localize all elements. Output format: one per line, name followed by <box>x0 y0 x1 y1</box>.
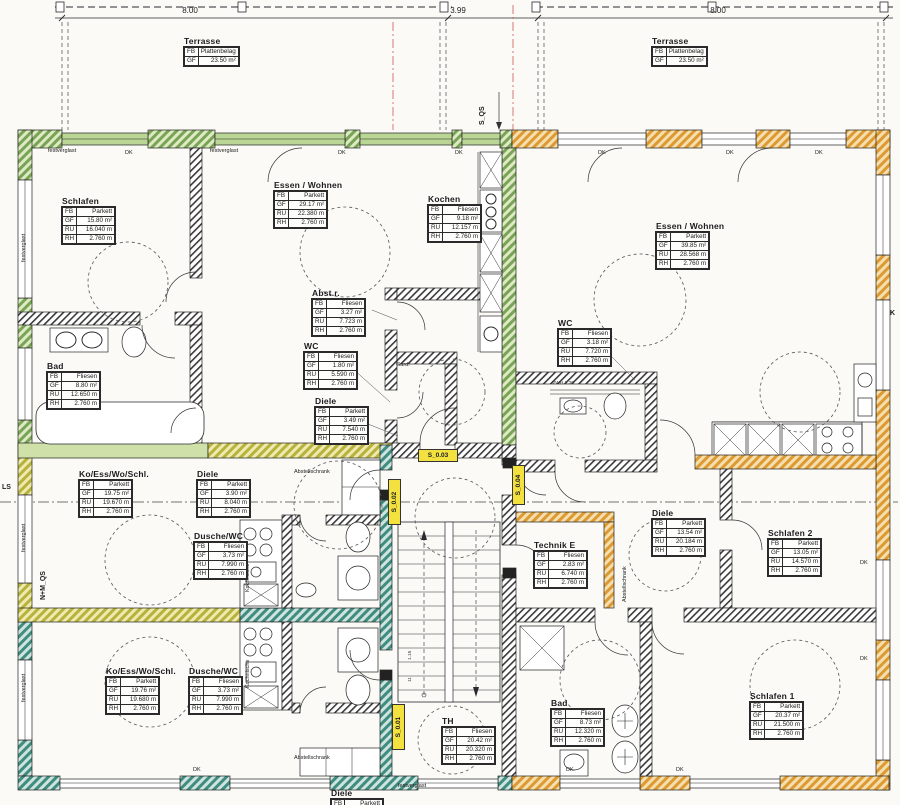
kitchen-left-fixtures <box>478 152 502 352</box>
room-name: Schlafen 1 <box>750 691 803 701</box>
room-name: Terrasse <box>184 36 239 46</box>
window-label-dk: DK <box>566 767 574 773</box>
room-annotation-dusche-upper: Dusche/WC FBFliesenGF3.73 m²RU7.990 mRH2… <box>194 531 247 579</box>
window-label-dk: DK <box>125 150 133 156</box>
section-mark-s003: S_0.03 <box>418 449 458 462</box>
room-annotation-essen-wohnen-right: Essen / Wohnen FBParkettGF39.85 m²RU28.5… <box>656 221 724 269</box>
room-data-table: FBFliesenGF8.73 m²RU12.320 mRH2.760 m <box>551 709 604 746</box>
room-annotation-terrasse-right: Terrasse FBPlattenbelagGF23.50 m² <box>652 36 707 66</box>
axis-label-ls: LS <box>2 484 11 491</box>
room-name: Dusche/WC <box>194 531 247 541</box>
room-annotation-abstellraum: Abst.r. FBFliesenGF3.27 m²RU7.723 mRH2.7… <box>312 288 365 336</box>
closet-label-abstellschrank: Abstellschrank <box>294 469 330 475</box>
room-name: Abst.r. <box>312 288 365 298</box>
window-label-dk: DK <box>455 150 463 156</box>
room-data-table: FBFliesenGF2.83 m²RU6.740 mRH2.760 m <box>534 551 587 588</box>
room-name: Essen / Wohnen <box>274 180 342 190</box>
window-label-dk: DK <box>815 150 823 156</box>
room-name: Diele <box>331 788 383 798</box>
closet-label-abstellschrank: Abstellschrank <box>622 566 628 602</box>
room-data-table: FBParkettGF29.17 m²RU22.380 mRH2.760 m <box>274 191 327 228</box>
room-annotation-studio-lower: Ko/Ess/Wo/Schl. FBParkettGF19.76 m²RU19.… <box>106 666 176 714</box>
room-data-table: FBFliesenGF8.80 m²RU12.650 mRH2.760 m <box>47 372 100 409</box>
room-annotation-wc-right: WC FBFliesenGF3.18 m²RU7.720 mRH2.760 m <box>558 318 611 366</box>
window-label-festverglast: festverglast <box>21 234 27 262</box>
room-data-table: FBFliesenGF3.18 m²RU7.720 mRH2.760 m <box>558 329 611 366</box>
wall-height-note: VWH 1.30 <box>552 381 574 386</box>
axis-label-nmqs: N+M_QS <box>40 571 47 600</box>
terrace-lines <box>55 2 893 130</box>
closet-label-abstellschrank: Abstellschrank <box>294 755 330 761</box>
dimension-label-mid: 3.99 <box>438 6 478 15</box>
room-annotation-kochen: Kochen FBFliesenGF9.18 m²RU12.157 mRH2.7… <box>428 194 481 242</box>
room-annotation-bad-left: Bad FBFliesenGF8.80 m²RU12.650 mRH2.760 … <box>47 361 100 409</box>
window-label-dk: DK <box>726 150 734 156</box>
room-name: WC <box>558 318 611 328</box>
room-name: Dusche/WC <box>189 666 242 676</box>
room-annotation-bad-right: Bad FBFliesenGF8.73 m²RU12.320 mRH2.760 … <box>551 698 604 746</box>
window-label-dk: DK <box>193 767 201 773</box>
room-name: Diele <box>315 396 368 406</box>
room-annotation-schlafen: Schlafen FBParkettGF15.80 m²RU16.040 mRH… <box>62 196 115 244</box>
window-label-dk: DK <box>338 150 346 156</box>
room-data-table: FBParkettGF20.37 m²RU21.500 mRH2.760 m <box>750 702 803 739</box>
kitchenette-label-kochnische: Kochnische <box>245 660 251 688</box>
dimension-label-left: 8.00 <box>170 6 210 15</box>
room-data-table: FBFliesenGF3.73 m²RU7.990 mRH2.760 m <box>189 677 242 714</box>
room-annotation-studio-upper: Ko/Ess/Wo/Schl. FBParkettGF19.75 m²RU19.… <box>79 469 149 517</box>
room-name: Kochen <box>428 194 481 204</box>
dimension-label-right: 8.00 <box>698 6 738 15</box>
room-data-table: FBParkettGF3.90 m²RU8.040 mRH2.760 m <box>197 480 250 517</box>
window-label-dk: DK <box>676 767 684 773</box>
axis-label-k: K <box>890 310 895 317</box>
room-name: Schlafen <box>62 196 115 206</box>
room-annotation-terrasse-left: Terrasse FBPlattenbelagGF23.50 m² <box>184 36 239 66</box>
window-label-dk: DK <box>860 656 868 662</box>
room-name: Diele <box>197 469 250 479</box>
room-data-table: FBFliesenGF20.42 m²RU20.320 mRH2.760 m <box>442 727 495 764</box>
room-data-table: FBFliesenGF3.27 m²RU7.723 mRH2.760 m <box>312 299 365 336</box>
room-name: Essen / Wohnen <box>656 221 724 231</box>
window-label-festverglast: festverglast <box>210 148 238 154</box>
room-data-table: FBFliesenGF3.73 m²RU7.990 mRH2.760 m <box>194 542 247 579</box>
stair-note-a: 1.15 <box>408 651 413 660</box>
window-label-festverglast: festverglast <box>21 524 27 552</box>
stair-note-b: 11 <box>408 677 413 682</box>
room-annotation-wc-left: WC FBFliesenGF1.80 m²RU5.590 mRH2.760 m <box>304 341 357 389</box>
room-data-table: FBPlattenbelagGF23.50 m² <box>652 47 707 66</box>
window-label-dk: DK <box>860 560 868 566</box>
room-annotation-schlafen1: Schlafen 1 FBParkettGF20.37 m²RU21.500 m… <box>750 691 803 739</box>
room-name: TH <box>442 716 495 726</box>
window-label-dk: DK <box>598 150 606 156</box>
floor-plan-page: Terrasse FBPlattenbelagGF23.50 m² Terras… <box>0 0 900 805</box>
room-name: Technik E <box>534 540 587 550</box>
room-name: WC <box>304 341 357 351</box>
room-name: Ko/Ess/Wo/Schl. <box>106 666 176 676</box>
room-data-table: FBParkettGF13.54 m²RU20.184 mRH2.760 m <box>652 519 705 556</box>
window-label-festverglast: festverglast <box>48 148 76 154</box>
room-data-table: FBParkettGF13.05 m²RU14.570 mRH2.760 m <box>768 539 821 576</box>
window-label-festverglast: festverglast <box>21 674 27 702</box>
room-data-table: FBFliesenGF1.80 m²RU5.590 mRH2.760 m <box>304 352 357 389</box>
room-data-table: FBParkettGF39.85 m²RU28.568 mRH2.760 m <box>656 232 709 269</box>
room-data-table: FBPlattenbelagGF23.50 m² <box>184 47 239 66</box>
room-annotation-dusche-lower: Dusche/WC FBFliesenGF3.73 m²RU7.990 mRH2… <box>189 666 242 714</box>
room-name: Terrasse <box>652 36 707 46</box>
room-annotation-diele-right: Diele FBParkettGF13.54 m²RU20.184 mRH2.7… <box>652 508 705 556</box>
room-data-table: FBFliesenGF9.18 m²RU12.157 mRH2.760 m <box>428 205 481 242</box>
wardrobe-label-gard: Gard. <box>396 362 410 368</box>
room-annotation-schlafen2: Schlafen 2 FBParkettGF13.05 m²RU14.570 m… <box>768 528 821 576</box>
axis-label-sqs-top: S_QS <box>479 106 486 125</box>
room-data-table: FBParkett <box>331 799 383 805</box>
room-data-table: FBParkettGF3.49 m²RU7.540 mRH2.760 m <box>315 407 368 444</box>
section-mark-s002: S_0.02 <box>388 479 401 525</box>
room-name: Schlafen 2 <box>768 528 821 538</box>
room-annotation-technik: Technik E FBFliesenGF2.83 m²RU6.740 mRH2… <box>534 540 587 588</box>
room-name: Bad <box>47 361 100 371</box>
window-label-festverglast: festverglast <box>398 783 426 789</box>
section-mark-s004: S_0.04 <box>512 465 525 505</box>
section-mark-s001: S_0.01 <box>392 704 405 750</box>
room-name: Bad <box>551 698 604 708</box>
room-annotation-diele-bottom: Diele FBParkett <box>331 788 383 805</box>
room-name: Diele <box>652 508 705 518</box>
room-annotation-diele-studio: Diele FBParkettGF3.90 m²RU8.040 mRH2.760… <box>197 469 250 517</box>
room-data-table: FBParkettGF19.76 m²RU19.680 mRH2.760 m <box>106 677 159 714</box>
room-annotation-diele-left: Diele FBParkettGF3.49 m²RU7.540 mRH2.760… <box>315 396 368 444</box>
room-annotation-treppenhaus: TH FBFliesenGF20.42 m²RU20.320 mRH2.760 … <box>442 716 495 764</box>
room-data-table: FBParkettGF19.75 m²RU19.670 mRH2.760 m <box>79 480 132 517</box>
room-annotation-essen-wohnen-left: Essen / Wohnen FBParkettGF29.17 m²RU22.3… <box>274 180 342 228</box>
room-name: Ko/Ess/Wo/Schl. <box>79 469 149 479</box>
room-data-table: FBParkettGF15.80 m²RU16.040 mRH2.760 m <box>62 207 115 244</box>
